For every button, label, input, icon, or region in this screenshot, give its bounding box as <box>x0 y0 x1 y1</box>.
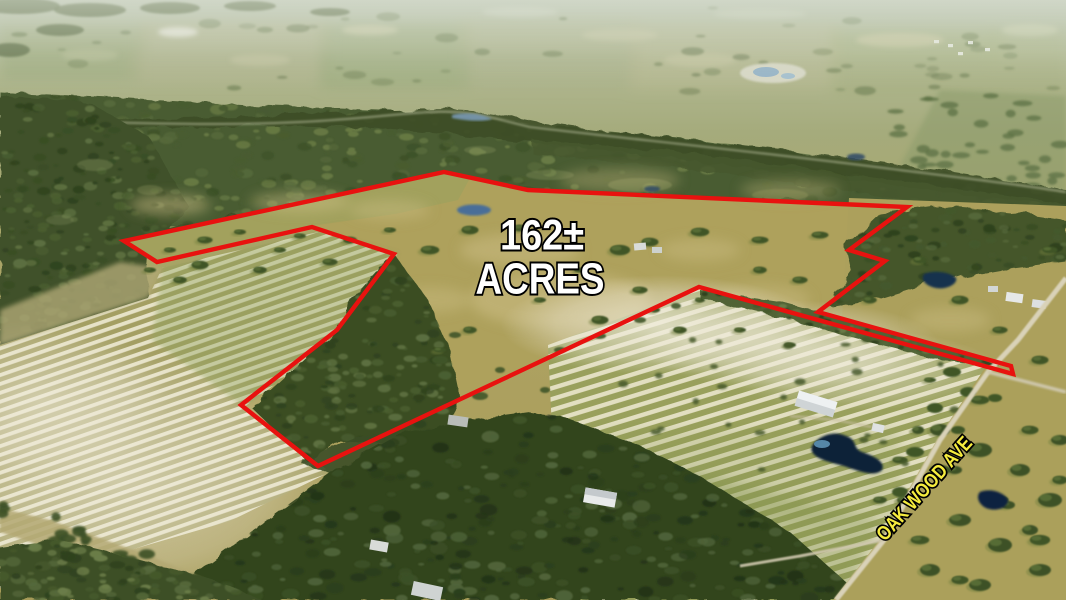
svg-text:ACRES: ACRES <box>476 255 605 304</box>
svg-text:162±: 162± <box>500 212 584 260</box>
